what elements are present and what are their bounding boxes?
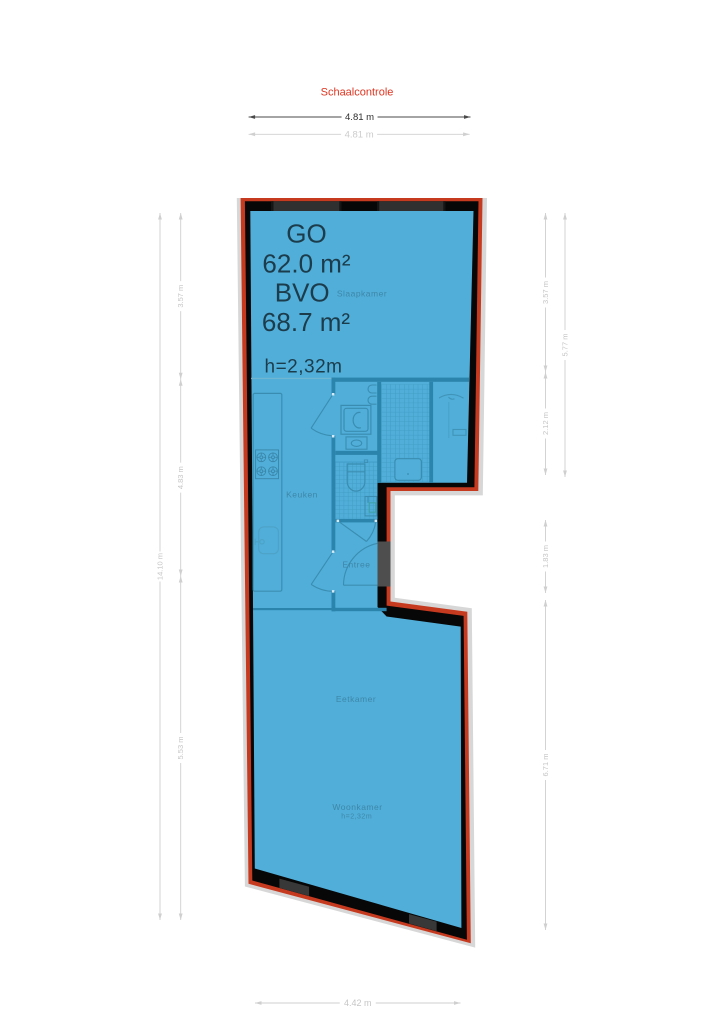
svg-text:h=2,32m: h=2,32m	[341, 814, 372, 821]
svg-text:Woonkamer: Woonkamer	[332, 802, 382, 812]
svg-text:Eetkamer: Eetkamer	[336, 694, 376, 704]
svg-text:68.7 m²: 68.7 m²	[262, 307, 350, 337]
svg-text:5.77 m: 5.77 m	[561, 334, 570, 357]
svg-text:6.71 m: 6.71 m	[541, 754, 550, 777]
svg-text:4.83 m: 4.83 m	[176, 466, 185, 489]
svg-text:4.42 m: 4.42 m	[344, 998, 372, 1008]
svg-text:4.81 m: 4.81 m	[345, 129, 374, 140]
svg-text:4.81 m: 4.81 m	[345, 112, 374, 123]
svg-text:GO: GO	[286, 219, 326, 249]
svg-text:62.0 m²: 62.0 m²	[262, 248, 350, 278]
svg-text:Entree: Entree	[342, 559, 370, 569]
svg-text:3.57 m: 3.57 m	[176, 285, 185, 308]
svg-text:Slaapkamer: Slaapkamer	[337, 289, 387, 299]
svg-text:5.53 m: 5.53 m	[176, 737, 185, 760]
svg-text:2.12 m: 2.12 m	[541, 412, 550, 435]
svg-text:3.57 m: 3.57 m	[541, 281, 550, 304]
svg-text:BVO: BVO	[275, 278, 330, 308]
svg-text:Keuken: Keuken	[286, 490, 318, 500]
svg-text:1.83 m: 1.83 m	[541, 545, 550, 568]
svg-text:h=2,32m: h=2,32m	[265, 357, 343, 378]
svg-text:Schaalcontrole: Schaalcontrole	[321, 87, 394, 99]
svg-text:14.10 m: 14.10 m	[156, 553, 165, 580]
